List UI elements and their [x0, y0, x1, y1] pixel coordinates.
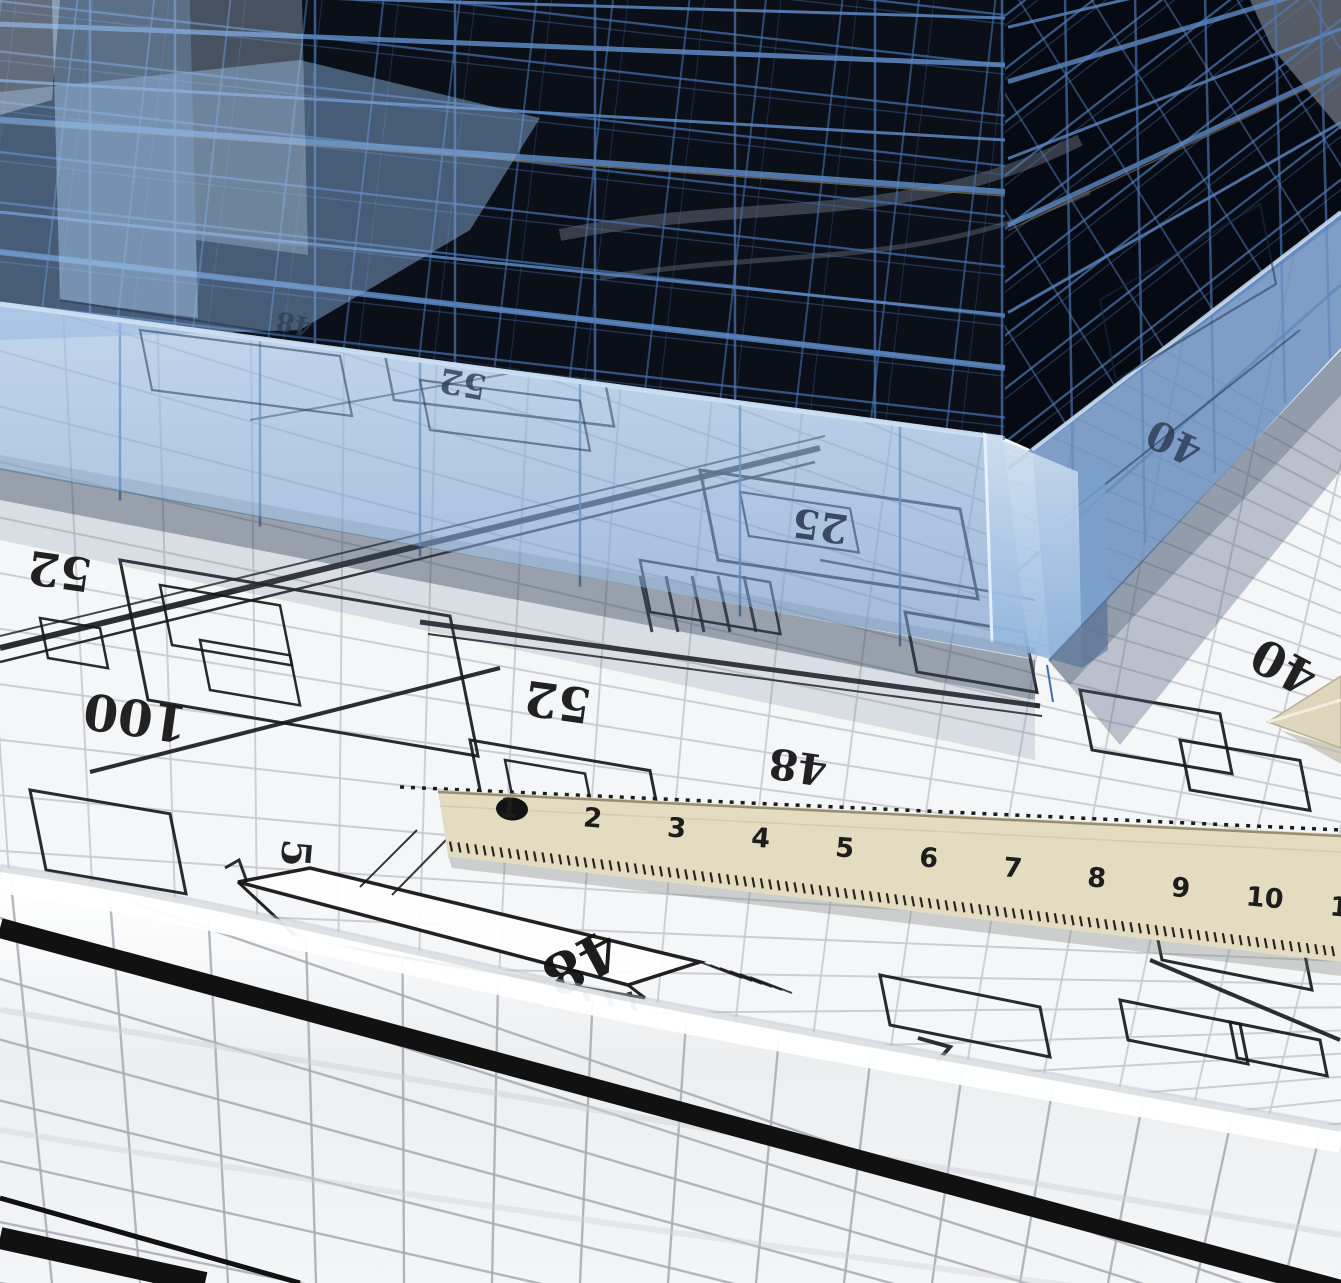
ruler-number: 9 [1170, 872, 1191, 905]
blueprint-scene: 5210052484040548255248 1234567891011 [0, 0, 1341, 1283]
ruler-number: 8 [1086, 862, 1107, 895]
ruler-number: 7 [1002, 852, 1023, 885]
ruler-number: 2 [582, 802, 603, 835]
ruler-number: 4 [750, 822, 771, 855]
ruler-number: 10 [1245, 881, 1285, 915]
glass-tower-panel-2 [190, 0, 308, 255]
ruler-number: 11 [1329, 891, 1341, 925]
glass-tower-panel [52, 0, 198, 318]
plan-dimension-label: 5 [271, 837, 320, 869]
ruler-number: 3 [666, 812, 687, 845]
ruler-number: 1 [498, 792, 519, 825]
scene-canvas: 5210052484040548255248 1234567891011 [0, 0, 1341, 1283]
ruler-number: 5 [834, 832, 855, 865]
plan-dimension-label: 52 [24, 540, 95, 602]
plan-dimension-label: 52 [436, 359, 490, 407]
plan-dimension-label: 25 [789, 498, 851, 552]
plan-dimension-label: 48 [766, 738, 831, 795]
ruler-number: 6 [918, 842, 939, 875]
plan-dimension-label: 52 [521, 668, 595, 733]
glass-corner-sliver [0, 0, 60, 115]
